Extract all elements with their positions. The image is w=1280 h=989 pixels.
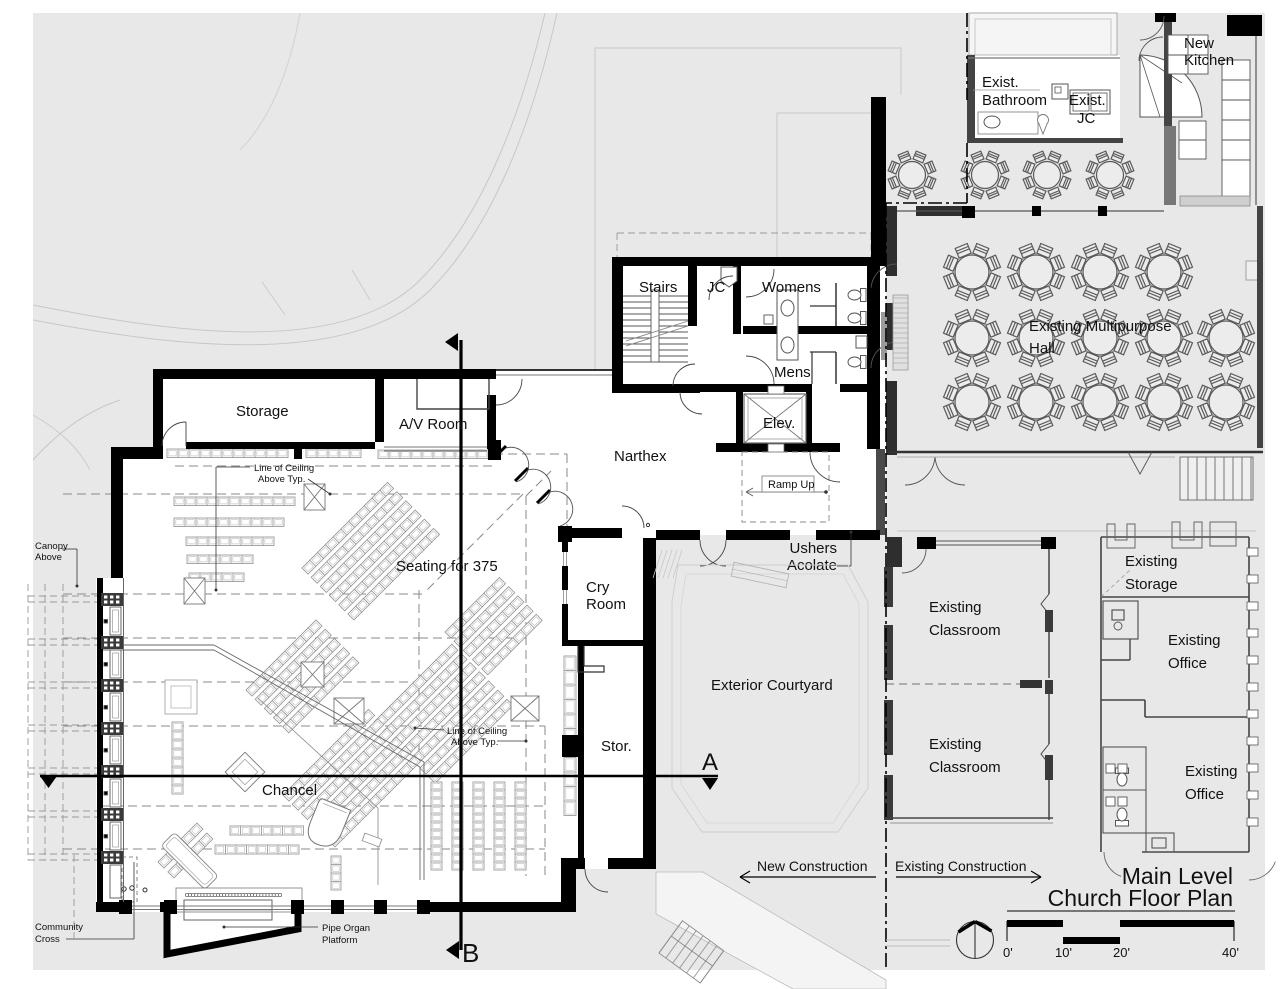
svg-text:Mens: Mens [774, 364, 811, 381]
svg-text:New Construction: New Construction [757, 858, 868, 874]
svg-text:40': 40' [1222, 945, 1239, 960]
svg-text:Hall: Hall [1029, 340, 1055, 357]
svg-text:A: A [702, 749, 718, 776]
svg-text:Line of Ceiling: Line of Ceiling [447, 726, 507, 737]
svg-text:JC: JC [1077, 110, 1096, 127]
svg-text:Chancel: Chancel [262, 782, 317, 799]
svg-text:Exterior Courtyard: Exterior Courtyard [711, 677, 833, 694]
svg-text:Cross: Cross [35, 934, 60, 945]
svg-text:Bathroom: Bathroom [982, 92, 1047, 109]
svg-text:Ramp Up: Ramp Up [768, 479, 814, 491]
svg-text:20': 20' [1113, 945, 1130, 960]
svg-text:JC: JC [707, 279, 726, 296]
svg-text:Womens: Womens [762, 279, 821, 296]
svg-text:0': 0' [1003, 945, 1013, 960]
svg-text:Narthex: Narthex [614, 448, 667, 465]
svg-text:Church Floor Plan: Church Floor Plan [1048, 885, 1233, 911]
svg-text:Community: Community [35, 922, 83, 933]
svg-text:Ushers: Ushers [789, 540, 837, 557]
svg-text:Existing: Existing [1168, 632, 1221, 649]
svg-text:Stor.: Stor. [601, 738, 632, 755]
svg-text:Existing: Existing [929, 736, 982, 753]
svg-text:Stairs: Stairs [639, 279, 677, 296]
svg-text:Existing: Existing [929, 599, 982, 616]
svg-text:Canopy: Canopy [35, 541, 68, 552]
svg-text:Exist.: Exist. [982, 74, 1019, 91]
svg-text:Platform: Platform [322, 935, 357, 946]
svg-text:Storage: Storage [236, 403, 289, 420]
svg-text:Storage: Storage [1125, 576, 1178, 593]
svg-text:Existing: Existing [1125, 553, 1178, 570]
svg-text:Classroom: Classroom [929, 622, 1001, 639]
svg-text:Line of Ceiling: Line of Ceiling [254, 463, 314, 474]
svg-text:Above: Above [35, 552, 62, 563]
svg-text:Office: Office [1168, 655, 1207, 672]
svg-text:Kitchen: Kitchen [1184, 52, 1234, 69]
svg-text:10': 10' [1055, 945, 1072, 960]
svg-text:B: B [462, 938, 479, 968]
svg-text:Elev.: Elev. [763, 415, 795, 432]
svg-text:Existing Multipurpose: Existing Multipurpose [1029, 318, 1172, 335]
svg-text:Above Typ.: Above Typ. [451, 737, 498, 748]
svg-text:Room: Room [586, 596, 626, 613]
svg-text:A/V Room: A/V Room [399, 416, 467, 433]
svg-text:Existing: Existing [1185, 763, 1238, 780]
svg-text:New: New [1184, 35, 1214, 52]
svg-text:Above Typ.: Above Typ. [258, 474, 305, 485]
svg-text:Exist.: Exist. [1069, 92, 1106, 109]
svg-text:Cry: Cry [586, 579, 610, 596]
svg-text:Classroom: Classroom [929, 759, 1001, 776]
svg-text:Office: Office [1185, 786, 1224, 803]
svg-text:Existing Construction: Existing Construction [895, 858, 1027, 874]
svg-text:Pipe Organ: Pipe Organ [322, 923, 370, 934]
svg-text:Acolate: Acolate [787, 557, 837, 574]
svg-text:Seating for 375: Seating for 375 [396, 558, 498, 575]
